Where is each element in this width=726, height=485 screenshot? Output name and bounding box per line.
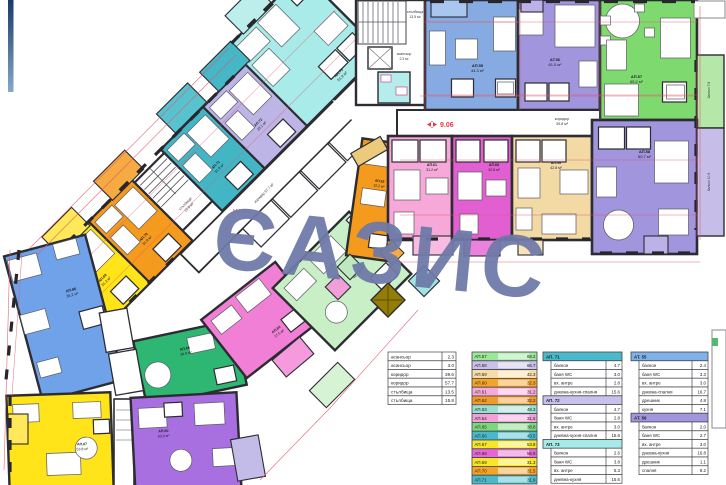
svg-text:АП.66: АП.66 [475,433,488,438]
svg-text:АП.60: АП.60 [158,429,168,434]
svg-text:асансьор: асансьор [391,363,411,368]
svg-text:АП.59: АП.59 [475,372,488,377]
svg-text:балкон: балкон [554,451,569,456]
svg-text:13.5: 13.5 [445,389,454,394]
svg-text:АП.59: АП.59 [551,161,561,165]
svg-text:АП.60: АП.60 [475,381,488,386]
svg-text:31.9: 31.9 [527,477,536,482]
svg-text:вх. антре: вх. антре [554,381,573,386]
svg-text:9.06: 9.06 [440,122,454,129]
svg-text:31.3: 31.3 [527,460,536,465]
svg-text:2.3: 2.3 [448,354,455,359]
svg-text:стълбища: стълбища [391,398,413,403]
svg-text:коридор: коридор [391,381,409,386]
svg-text:АТ. 55: АТ. 55 [634,354,647,359]
svg-text:32.3: 32.3 [527,381,536,386]
svg-text:дрешник: дрешник [642,459,660,464]
svg-text:48.3: 48.3 [527,407,536,412]
svg-text:4.7: 4.7 [614,407,621,412]
svg-text:2.0: 2.0 [700,424,707,429]
svg-text:балкон: балкон [642,424,657,429]
svg-text:42.3: 42.3 [527,372,536,377]
svg-text:АП. 73: АП. 73 [546,442,560,447]
svg-text:АП.64: АП.64 [475,416,488,421]
svg-text:АП.61: АП.61 [427,163,437,167]
svg-text:баня WC: баня WC [554,416,572,421]
svg-text:31.2: 31.2 [527,389,536,394]
svg-text:15.6: 15.6 [611,389,620,394]
svg-text:3.3: 3.3 [700,372,707,377]
svg-text:АП. 72: АП. 72 [546,398,560,403]
svg-text:1.1: 1.1 [700,459,707,464]
svg-text:стълбища: стълбища [407,10,423,14]
svg-text:31.5: 31.5 [527,469,536,474]
svg-text:3.0: 3.0 [614,372,621,377]
svg-text:42.8 м²: 42.8 м² [550,166,562,170]
svg-text:АП.69: АП.69 [475,460,488,465]
svg-text:3.0: 3.0 [700,442,707,447]
svg-text:вх. антре: вх. антре [554,424,573,429]
svg-text:7.1: 7.1 [700,407,707,412]
svg-text:дневна-кухня: дневна-кухня [642,451,670,456]
svg-text:2.4: 2.4 [700,363,707,368]
svg-text:АП.68: АП.68 [489,163,499,167]
svg-text:АТ. 56: АТ. 56 [634,416,647,421]
svg-text:53.8 м²: 53.8 м² [76,447,89,451]
svg-text:38.8: 38.8 [527,425,536,430]
svg-text:31.2 м²: 31.2 м² [426,168,438,172]
svg-text:15.8: 15.8 [445,398,454,403]
svg-text:кухня: кухня [642,407,654,412]
svg-text:31.5: 31.5 [527,416,536,421]
svg-text:АП.62: АП.62 [475,398,488,403]
svg-text:вх. антре: вх. антре [642,442,661,447]
svg-text:вх. антре: вх. антре [554,468,573,473]
svg-text:53.8: 53.8 [527,442,536,447]
svg-text:44.3 м²: 44.3 м² [471,68,485,73]
svg-text:60.7 м²: 60.7 м² [638,154,652,159]
svg-text:дневна-спалня: дневна-спалня [642,389,673,394]
svg-text:8.2: 8.2 [700,468,707,473]
svg-text:66.7: 66.7 [527,363,536,368]
svg-text:АП.58: АП.58 [475,363,488,368]
svg-text:16.8: 16.8 [697,451,706,456]
svg-text:43.5: 43.5 [527,433,536,438]
svg-text:баня WC: баня WC [554,372,572,377]
svg-text:4.7: 4.7 [614,363,621,368]
svg-text:АП.57: АП.57 [475,354,488,359]
svg-text:32.8 м²: 32.8 м² [488,168,500,172]
svg-text:балкон: балкон [554,363,569,368]
svg-text:39.8 м²: 39.8 м² [556,122,569,126]
svg-text:3.0: 3.0 [700,381,707,386]
svg-text:дневна-кухня: дневна-кухня [554,477,582,482]
svg-text:56.9: 56.9 [527,451,536,456]
svg-text:АП.65: АП.65 [475,425,488,430]
svg-text:балкон: балкон [554,407,569,412]
svg-text:дневна-кухня-спалня: дневна-кухня-спалня [554,433,598,438]
svg-text:АП.67: АП.67 [77,442,87,446]
svg-text:2.3 м²: 2.3 м² [399,57,409,61]
svg-text:АП.71: АП.71 [475,477,488,482]
svg-text:баня WC: баня WC [554,459,572,464]
svg-text:коридор: коридор [555,117,570,121]
svg-text:2.8: 2.8 [614,416,621,421]
svg-text:балкон: балкон [642,363,657,368]
svg-text:АП.61: АП.61 [475,389,488,394]
svg-text:15.6: 15.6 [611,477,620,482]
svg-text:дневна-кухня-спалня: дневна-кухня-спалня [554,389,598,394]
svg-text:спалня: спалня [642,468,657,473]
svg-text:13.5 м²: 13.5 м² [409,15,421,19]
svg-text:баня WC: баня WC [642,433,660,438]
svg-text:АП.68: АП.68 [475,451,488,456]
svg-text:32.2: 32.2 [527,398,536,403]
svg-text:асансьор: асансьор [391,354,411,359]
svg-text:дрешник: дрешник [642,398,660,403]
svg-text:АП.63: АП.63 [475,407,488,412]
svg-text:39.6: 39.6 [445,372,454,377]
svg-text:стълбища: стълбища [391,389,413,394]
svg-text:5.3: 5.3 [614,468,621,473]
svg-text:65.2 м²: 65.2 м² [630,79,644,84]
svg-text:61.0 м²: 61.0 м² [549,62,563,67]
svg-text:3.8: 3.8 [614,459,621,464]
svg-text:4.8: 4.8 [700,398,707,403]
svg-text:АП.70: АП.70 [475,469,488,474]
svg-text:баня WC: баня WC [642,372,660,377]
svg-text:балкон 10.5: балкон 10.5 [707,173,711,192]
svg-text:балкон 7.8: балкон 7.8 [707,82,711,99]
svg-text:асансьор: асансьор [397,52,412,56]
svg-text:3.0: 3.0 [448,363,455,368]
svg-text:16.7: 16.7 [697,389,706,394]
svg-text:63.0 м²: 63.0 м² [158,434,171,439]
svg-text:2.6: 2.6 [614,451,621,456]
svg-text:коридор: коридор [391,372,409,377]
svg-text:АП.67: АП.67 [475,442,488,447]
svg-text:2.7: 2.7 [700,433,707,438]
svg-text:АП. 71: АП. 71 [546,354,560,359]
svg-text:3.0: 3.0 [614,424,621,429]
svg-text:2.8: 2.8 [614,381,621,386]
svg-text:15.6: 15.6 [611,433,620,438]
svg-text:57.7: 57.7 [445,381,454,386]
svg-text:68.2: 68.2 [527,354,536,359]
svg-text:вх. антре: вх. антре [642,381,661,386]
